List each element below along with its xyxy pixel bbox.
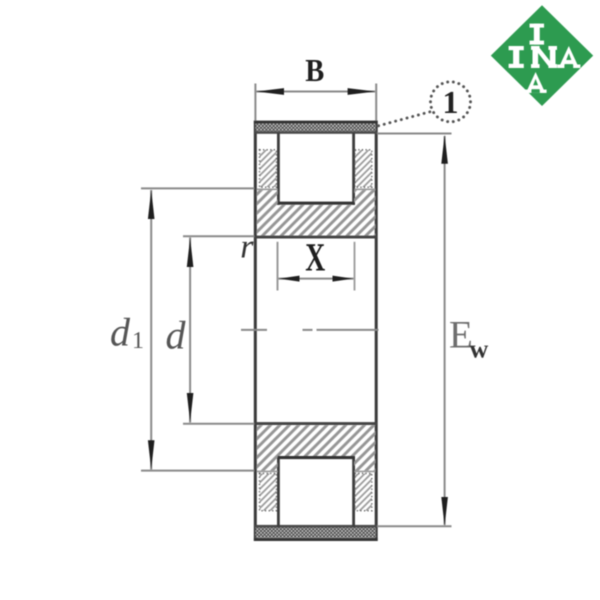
svg-text:1: 1 xyxy=(443,84,459,120)
svg-text:w: w xyxy=(470,334,489,363)
svg-text:d: d xyxy=(166,313,187,358)
svg-text:d: d xyxy=(110,309,131,354)
svg-text:1: 1 xyxy=(132,328,144,354)
svg-text:X: X xyxy=(305,235,325,280)
svg-text:r: r xyxy=(240,229,254,266)
svg-text:B: B xyxy=(305,52,324,88)
